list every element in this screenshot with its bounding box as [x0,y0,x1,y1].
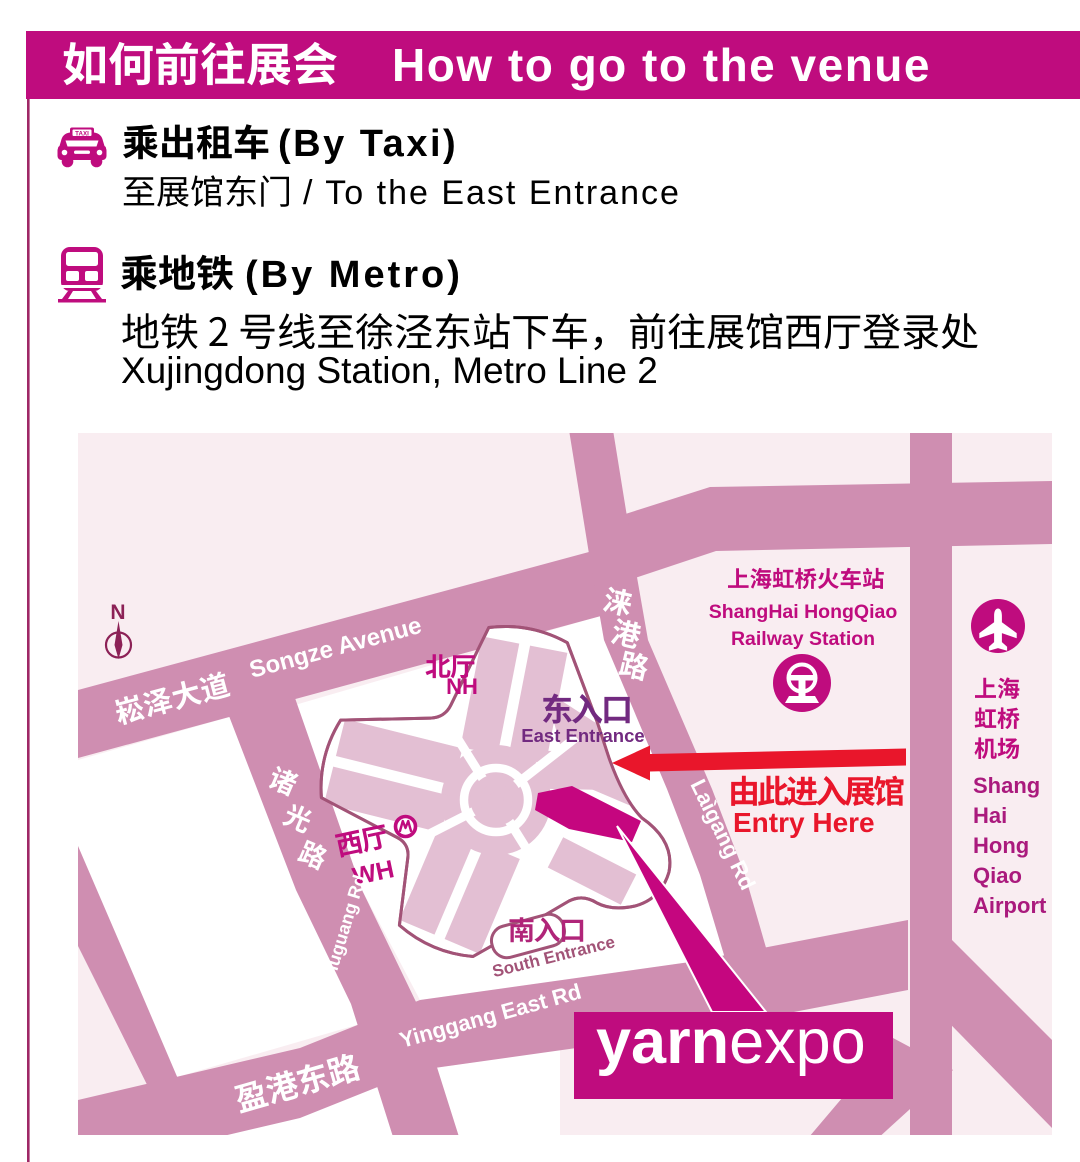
svg-text:Hai: Hai [973,803,1007,828]
svg-text:/ To the East Entrance: / To the East Entrance [303,174,681,212]
svg-text:(By Metro): (By Metro) [245,254,463,296]
svg-text:Railway Station: Railway Station [731,628,875,650]
svg-text:NH: NH [446,674,478,699]
svg-text:How to go to the venue: How to go to the venue [392,39,931,91]
svg-text:TAXI: TAXI [75,130,89,137]
svg-text:ShangHai HongQiao: ShangHai HongQiao [709,601,898,623]
svg-text:Airport: Airport [973,893,1047,918]
svg-text:(By Taxi): (By Taxi) [278,123,458,165]
svg-text:Shang: Shang [973,773,1040,798]
svg-text:yarnexpo: yarnexpo [596,1007,866,1077]
svg-text:Entry Here: Entry Here [733,807,875,838]
svg-text:East Entrance: East Entrance [521,725,644,746]
svg-text:Xujingdong Station, Metro Line: Xujingdong Station, Metro Line 2 [121,350,658,391]
svg-text:Qiao: Qiao [973,863,1022,888]
svg-text:N: N [110,601,125,624]
svg-text:Hong: Hong [973,833,1029,858]
